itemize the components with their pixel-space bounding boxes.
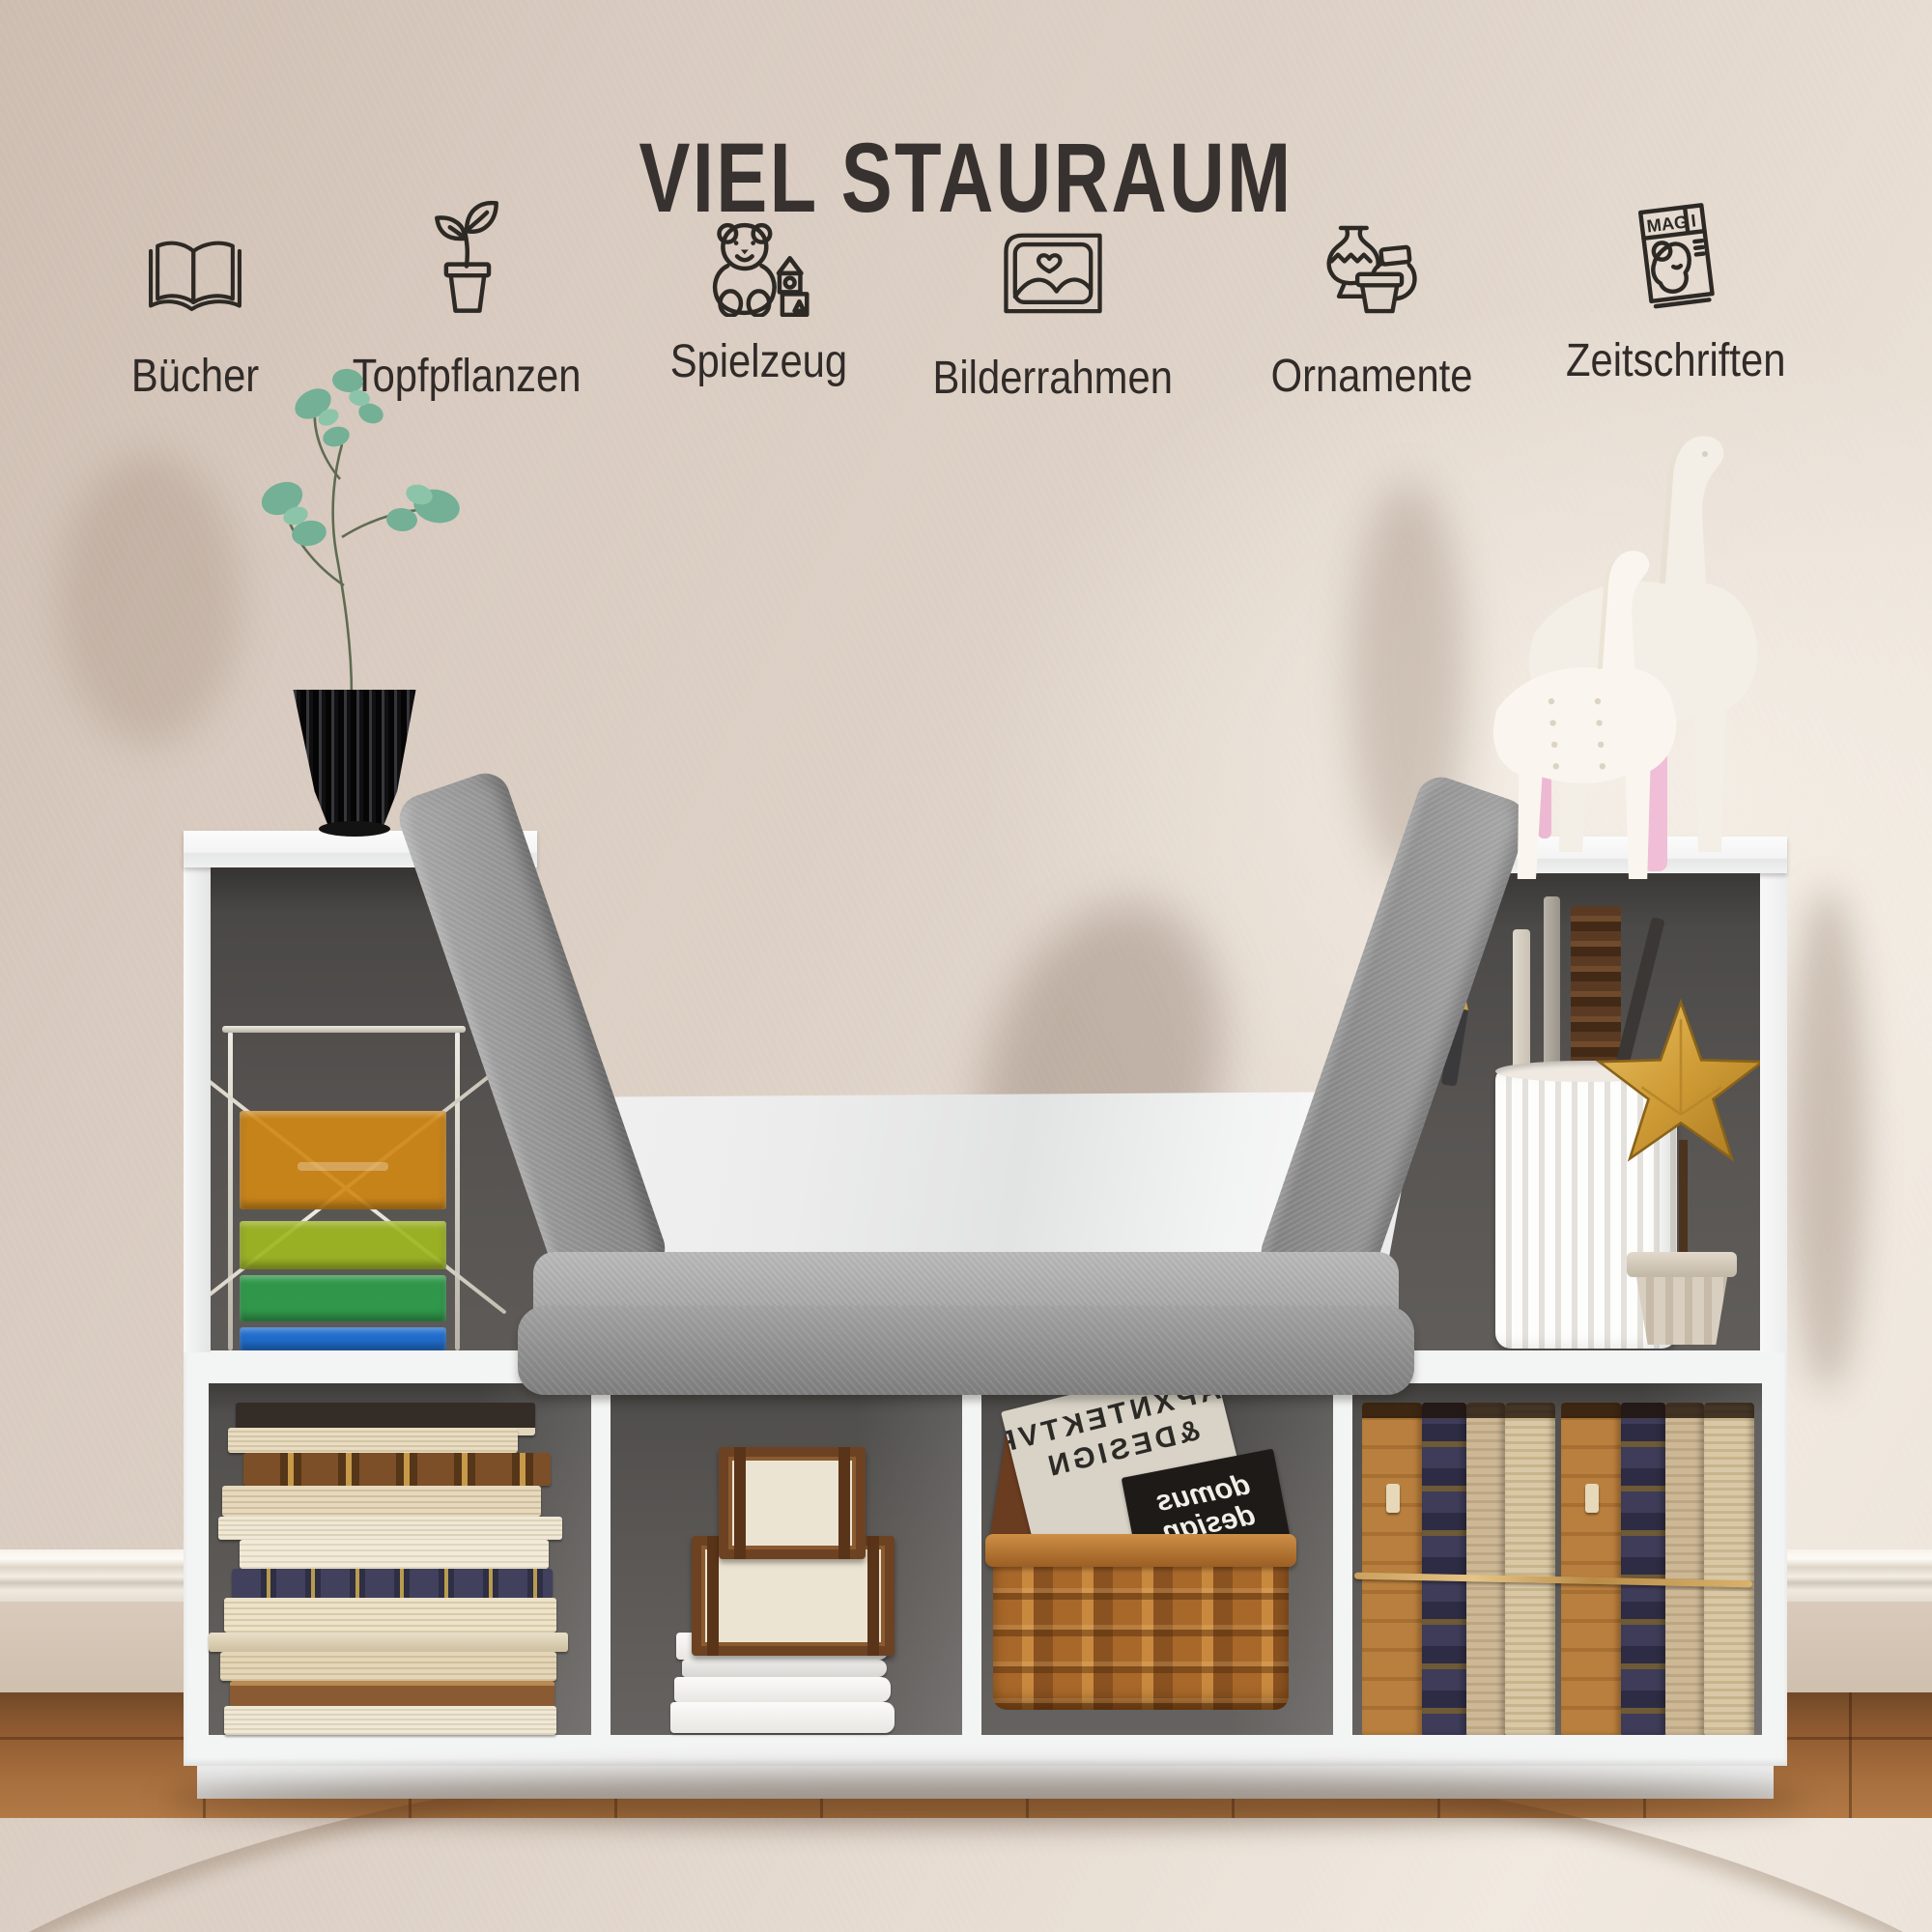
book-spine: [1422, 1403, 1466, 1735]
potted-plant-icon: [420, 189, 513, 317]
shelf-wall-shadow: [1789, 889, 1866, 1391]
book: [228, 1428, 518, 1453]
book-clasp: [1386, 1484, 1400, 1513]
antique-book-stack: [218, 1403, 585, 1735]
book-spine: [1362, 1403, 1422, 1735]
book-clasp: [1585, 1484, 1599, 1513]
right-side-panel: [1760, 873, 1787, 1352]
magazine-icon: MAG I: [1626, 189, 1726, 317]
blue-drawer: [240, 1327, 446, 1350]
white-book: [682, 1660, 887, 1677]
magazine-issue-text: I: [1690, 210, 1697, 230]
wire-drawer-organizer: [228, 1026, 460, 1350]
feature-label: Bilderrahmen: [933, 352, 1173, 405]
small-plant-pot: [1634, 1265, 1729, 1345]
picture-frame-icon-svg: [999, 228, 1107, 317]
gold-star-ornament: [1596, 999, 1766, 1169]
feature-ornamente: Ornamente: [1246, 189, 1497, 403]
tied-book-bundle: [1561, 1403, 1754, 1735]
green-drawer: [240, 1275, 446, 1321]
chest-strap: [867, 1536, 879, 1656]
white-book: [674, 1677, 891, 1702]
drawer-handle: [298, 1162, 388, 1171]
chest-strap: [707, 1536, 719, 1656]
book-spine: [1561, 1403, 1621, 1735]
horse-figurines: [1476, 421, 1776, 879]
book-spine: [1665, 1403, 1704, 1735]
magazine-icon-svg: MAG I: [1626, 199, 1726, 317]
open-book-icon-svg: [144, 236, 246, 317]
tied-book-bundle: [1362, 1403, 1555, 1735]
vase-foot: [319, 821, 390, 837]
vases-pottery-icon-svg: [1319, 224, 1425, 317]
book: [220, 1652, 556, 1681]
book: [218, 1517, 562, 1540]
book: [240, 1540, 549, 1569]
wire-post: [455, 1032, 460, 1350]
ornate-book: [232, 1569, 553, 1598]
teddy-bear-blocks-icon: [699, 189, 817, 317]
white-book: [670, 1702, 895, 1733]
teddy-bear-blocks-icon-svg: [699, 220, 817, 317]
feature-label: Zeitschriften: [1566, 334, 1785, 387]
plant-wall-shadow: [58, 454, 241, 744]
floor-shadow: [164, 1774, 1806, 1826]
feature-spielzeug: Spielzeug: [633, 189, 884, 403]
book: [224, 1598, 556, 1633]
small-pot-rim: [1627, 1252, 1737, 1277]
small-wooden-chest: [719, 1447, 866, 1559]
chest-strap: [734, 1447, 746, 1559]
seat-cushion-front: [518, 1306, 1414, 1395]
feature-label: Ornamente: [1271, 350, 1473, 403]
ruler-stick: [1513, 929, 1530, 1080]
feature-bilderrahmen: Bilderrahmen: [927, 189, 1179, 403]
open-book-icon: [144, 189, 246, 317]
book: [224, 1706, 556, 1735]
feature-label: Spielzeug: [669, 335, 846, 388]
vases-pottery-icon: [1319, 189, 1425, 317]
book-spine: [1466, 1403, 1505, 1735]
left-side-panel: [184, 867, 211, 1352]
potted-plant-icon-svg: [420, 195, 513, 317]
book-spine: [1505, 1403, 1555, 1735]
book: [222, 1486, 541, 1517]
lime-drawer: [240, 1221, 446, 1269]
book-spine: [1621, 1403, 1665, 1735]
wire-post: [228, 1032, 233, 1350]
picture-frame-icon: [999, 189, 1107, 317]
orange-drawer: [240, 1111, 446, 1209]
wire-top-bar: [222, 1026, 466, 1033]
book-spine: [1704, 1403, 1754, 1735]
eucalyptus-plant: [228, 363, 479, 701]
product-scene: VIEL STAURAUM Bücher Topfpflanzen: [0, 0, 1932, 1932]
chest-strap: [838, 1447, 850, 1559]
basket-rim: [985, 1534, 1296, 1567]
feature-zeitschriften: MAG I Zeitschriften: [1550, 189, 1802, 403]
gray-stick: [1544, 896, 1560, 1080]
ornate-book: [243, 1453, 551, 1486]
book: [209, 1633, 568, 1652]
